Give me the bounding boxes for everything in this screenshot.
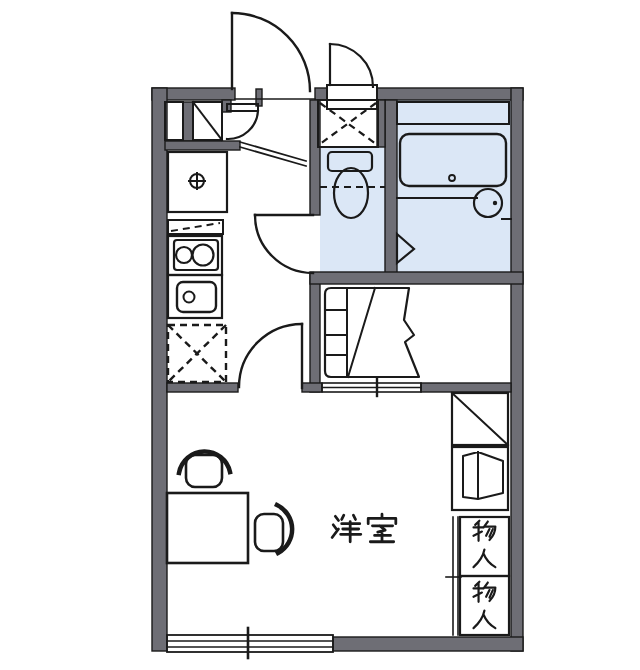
cabinet-upper-diagonal bbox=[452, 393, 508, 445]
desk bbox=[167, 493, 248, 563]
kitchen bbox=[168, 152, 227, 382]
entrance-step-edge-1 bbox=[240, 142, 306, 161]
washbasin-faucet bbox=[493, 201, 497, 205]
stove-burner-large bbox=[193, 245, 214, 266]
sink-drain bbox=[184, 292, 195, 303]
wall-room-top-mid bbox=[302, 383, 322, 392]
chair-side-seat bbox=[255, 514, 283, 551]
staircase bbox=[322, 288, 421, 396]
room-door-swing bbox=[239, 324, 302, 387]
stair-diagonal bbox=[348, 288, 375, 377]
cabinet-lower-door bbox=[463, 452, 503, 499]
entrance-step bbox=[165, 141, 240, 150]
washer-door-swing bbox=[330, 44, 373, 87]
wall-top-right bbox=[377, 88, 523, 100]
toilet-floor bbox=[320, 147, 385, 272]
entrance-step-edge-2 bbox=[240, 147, 306, 166]
counter-flap-dash bbox=[171, 223, 220, 231]
closet-door-swing bbox=[227, 111, 258, 139]
wall-room-top-right bbox=[421, 383, 511, 392]
wall-left bbox=[152, 88, 167, 651]
right-column bbox=[446, 393, 509, 635]
bottom-window bbox=[167, 628, 333, 658]
wall-bottom bbox=[333, 637, 523, 651]
wall-toilet-bath bbox=[385, 100, 397, 283]
wall-room-top-left bbox=[167, 383, 238, 392]
chair-top-seat bbox=[186, 455, 222, 487]
wall-entrance-strip bbox=[183, 102, 193, 141]
storage-upper-label bbox=[474, 521, 496, 567]
wall-top-mid bbox=[315, 88, 327, 100]
sliding-window bbox=[167, 635, 333, 652]
entrance-door-swing bbox=[232, 13, 310, 91]
room-label bbox=[332, 514, 396, 542]
floor-plan: 洋室 物入 物入 bbox=[0, 0, 640, 670]
main-room bbox=[167, 452, 396, 563]
cabinet-lower bbox=[452, 447, 508, 510]
washing-machine-space bbox=[318, 44, 378, 147]
storage-lower-label bbox=[474, 582, 496, 628]
shoe-cabinet-diagonal bbox=[193, 102, 222, 140]
chair-side-back bbox=[277, 505, 292, 553]
wall-mid-horizontal bbox=[310, 272, 523, 284]
washer-door-panel bbox=[327, 85, 377, 109]
storage-closet-lower bbox=[460, 576, 509, 635]
floor-plan-drawing bbox=[0, 0, 640, 670]
stove-burner-small bbox=[176, 247, 192, 263]
wall-corridor-lower bbox=[310, 273, 320, 392]
toilet-door-swing bbox=[255, 215, 313, 273]
stove-top bbox=[174, 240, 218, 270]
wall-right bbox=[511, 88, 523, 651]
staircase-outline bbox=[325, 288, 419, 377]
interior-doors bbox=[239, 215, 313, 388]
